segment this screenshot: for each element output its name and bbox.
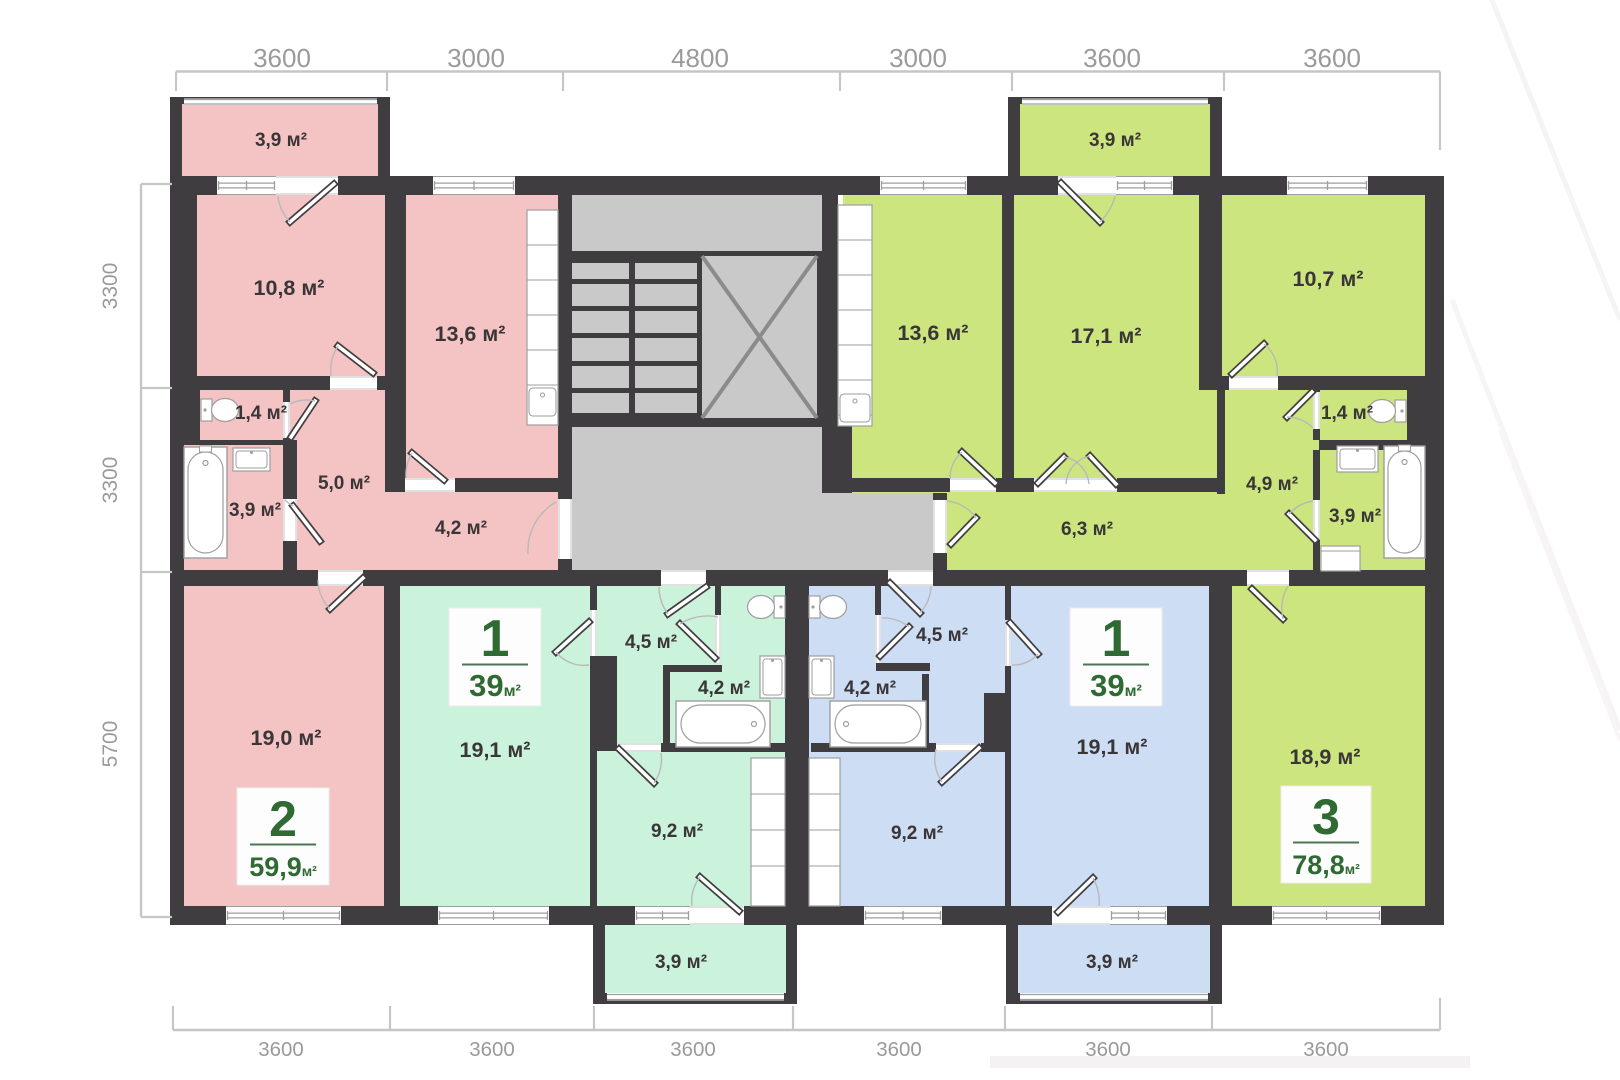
- svg-text:3,9 м²: 3,9 м²: [1329, 506, 1381, 527]
- svg-text:3: 3: [1312, 789, 1340, 845]
- svg-text:9,2 м²: 9,2 м²: [651, 821, 703, 842]
- svg-text:1,4 м²: 1,4 м²: [1321, 403, 1373, 424]
- svg-text:3600: 3600: [1085, 1038, 1131, 1061]
- svg-text:4,5 м²: 4,5 м²: [625, 632, 677, 653]
- svg-text:3600: 3600: [258, 1038, 304, 1061]
- svg-text:10,8 м²: 10,8 м²: [254, 276, 325, 300]
- svg-text:4,2 м²: 4,2 м²: [435, 518, 487, 539]
- svg-text:17,1 м²: 17,1 м²: [1071, 324, 1142, 348]
- svg-text:1: 1: [481, 610, 510, 668]
- svg-text:13,6 м²: 13,6 м²: [898, 321, 969, 345]
- svg-text:3600: 3600: [469, 1038, 515, 1061]
- svg-text:5,0 м²: 5,0 м²: [318, 473, 370, 494]
- svg-text:3600: 3600: [1303, 43, 1361, 73]
- svg-text:3,9 м²: 3,9 м²: [255, 130, 307, 151]
- svg-text:3000: 3000: [447, 43, 505, 73]
- svg-text:9,2 м²: 9,2 м²: [891, 823, 943, 844]
- svg-text:2: 2: [269, 791, 297, 847]
- svg-text:13,6 м²: 13,6 м²: [435, 322, 506, 346]
- svg-text:10,7 м²: 10,7 м²: [1293, 267, 1364, 291]
- svg-text:3600: 3600: [670, 1038, 716, 1061]
- svg-text:3300: 3300: [99, 457, 122, 504]
- svg-text:4,5 м²: 4,5 м²: [916, 625, 968, 646]
- svg-text:4,2 м²: 4,2 м²: [698, 678, 750, 699]
- svg-text:19,0 м²: 19,0 м²: [251, 726, 322, 750]
- svg-text:5700: 5700: [99, 721, 122, 768]
- svg-text:3,9 м²: 3,9 м²: [1089, 130, 1141, 151]
- svg-text:6,3 м²: 6,3 м²: [1061, 519, 1113, 540]
- svg-text:4,9 м²: 4,9 м²: [1246, 474, 1298, 495]
- svg-text:19,1 м²: 19,1 м²: [460, 738, 531, 762]
- svg-text:3600: 3600: [253, 43, 311, 73]
- svg-text:4800: 4800: [671, 43, 729, 73]
- svg-text:3600: 3600: [1303, 1038, 1349, 1061]
- svg-text:1,4 м²: 1,4 м²: [235, 403, 287, 424]
- svg-text:3300: 3300: [99, 263, 122, 310]
- svg-text:3,9 м²: 3,9 м²: [229, 500, 281, 521]
- svg-text:3,9 м²: 3,9 м²: [1086, 952, 1138, 973]
- svg-text:19,1 м²: 19,1 м²: [1077, 735, 1148, 759]
- svg-text:18,9 м²: 18,9 м²: [1290, 745, 1361, 769]
- svg-text:3600: 3600: [876, 1038, 922, 1061]
- svg-text:3,9 м²: 3,9 м²: [655, 952, 707, 973]
- svg-text:3000: 3000: [889, 43, 947, 73]
- svg-text:4,2 м²: 4,2 м²: [844, 678, 896, 699]
- svg-text:1: 1: [1102, 610, 1131, 668]
- svg-text:3600: 3600: [1083, 43, 1141, 73]
